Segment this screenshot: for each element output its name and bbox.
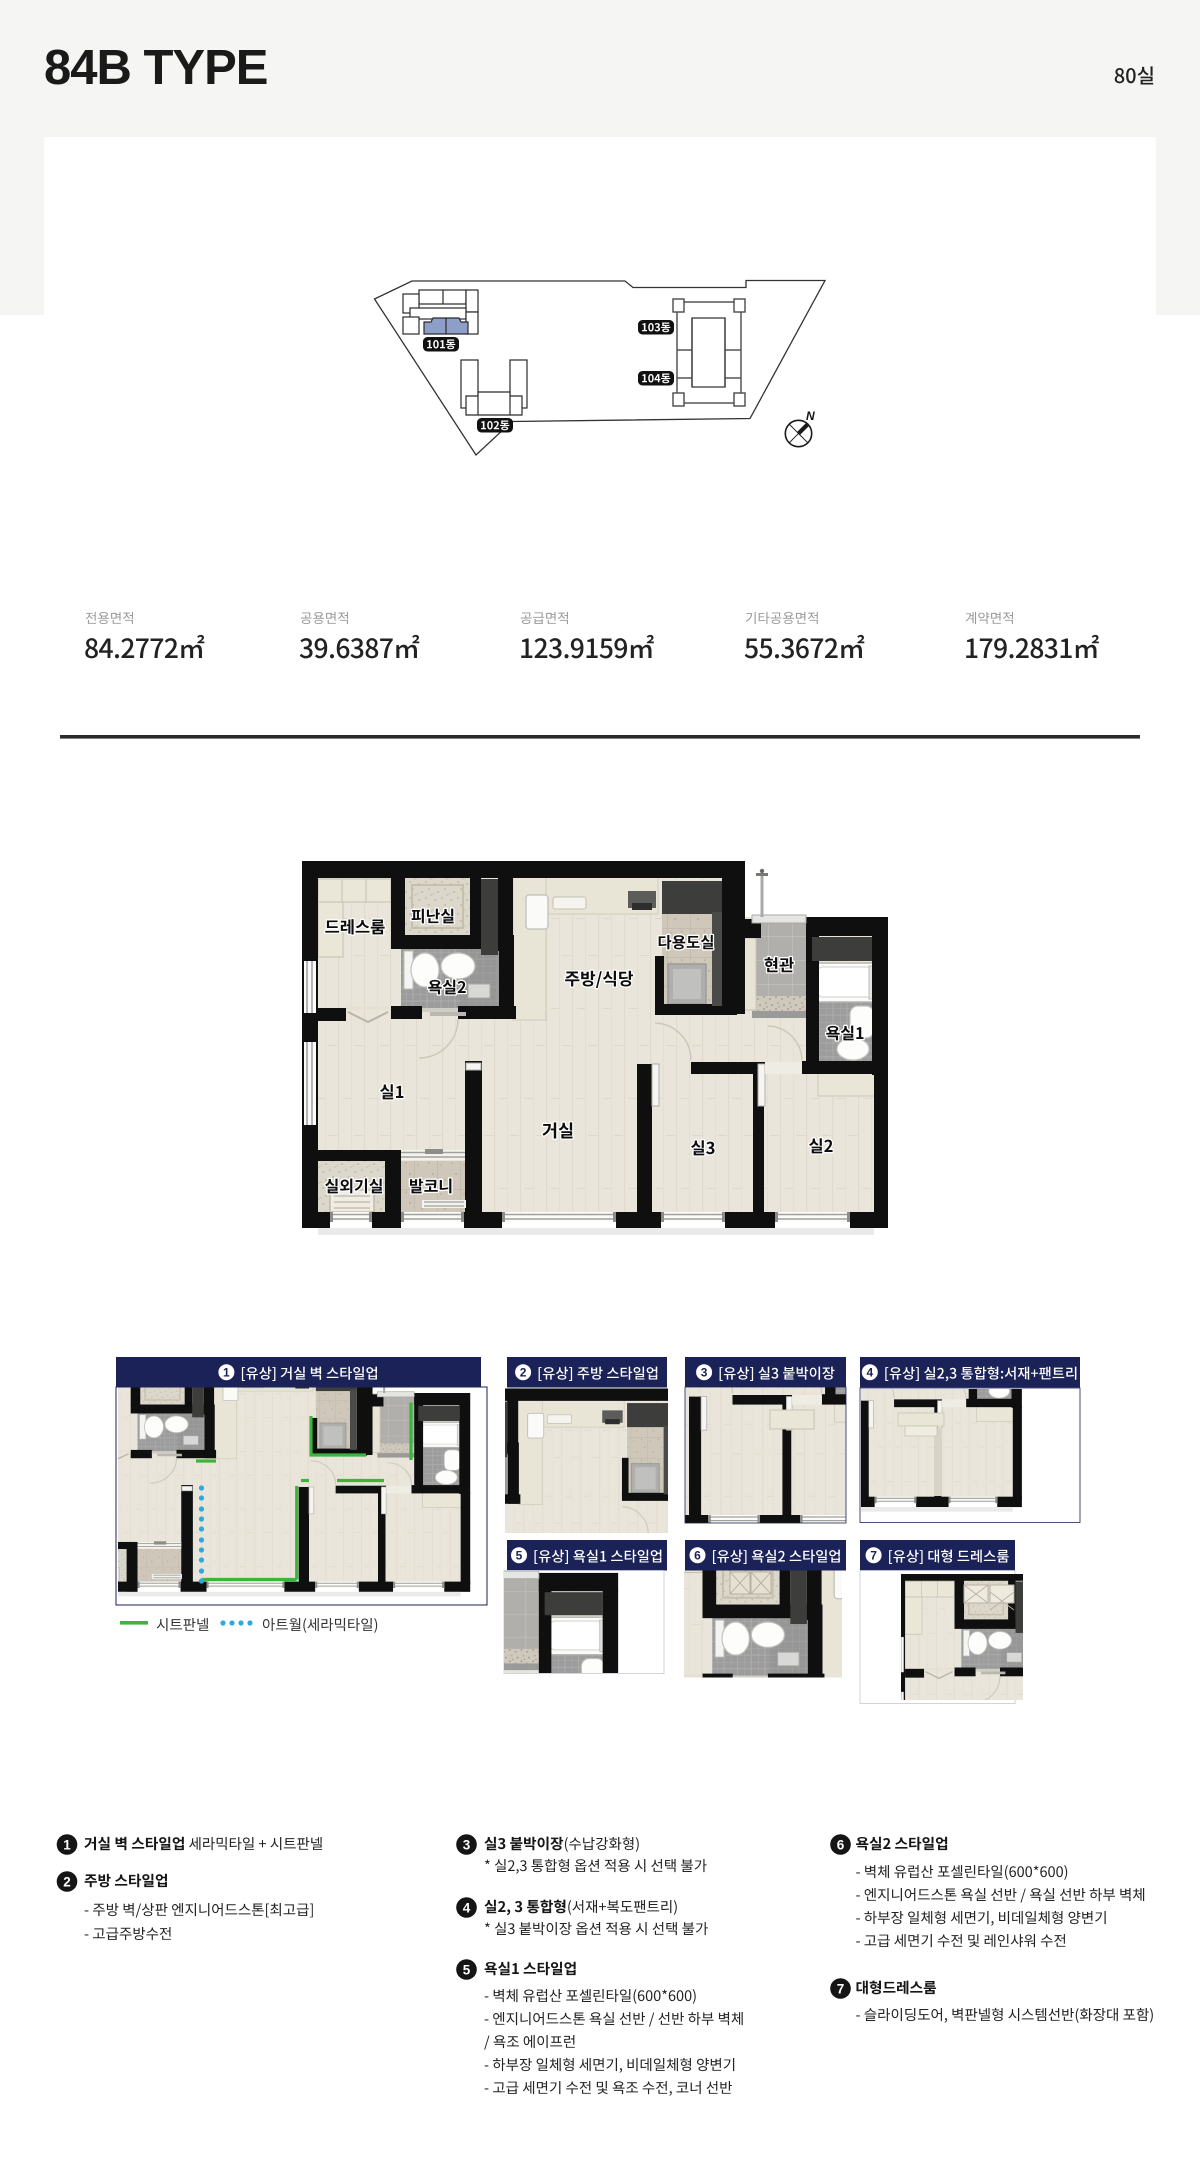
svg-text:3: 3 xyxy=(701,1366,708,1380)
svg-text:1: 1 xyxy=(223,1366,230,1380)
svg-text:7: 7 xyxy=(837,1981,845,1996)
svg-text:1: 1 xyxy=(63,1837,71,1852)
svg-text:5: 5 xyxy=(463,1962,471,1977)
svg-text:4: 4 xyxy=(866,1366,873,1380)
svg-text:6: 6 xyxy=(837,1837,845,1852)
svg-text:84B TYPE: 84B TYPE xyxy=(44,41,267,95)
svg-text:7: 7 xyxy=(870,1549,877,1563)
svg-text:2: 2 xyxy=(63,1874,71,1889)
svg-text:N: N xyxy=(806,409,815,423)
svg-text:6: 6 xyxy=(694,1549,701,1563)
svg-text:4: 4 xyxy=(463,1900,471,1915)
svg-text:2: 2 xyxy=(520,1366,527,1380)
svg-text:3: 3 xyxy=(463,1837,471,1852)
svg-text:5: 5 xyxy=(516,1549,523,1563)
